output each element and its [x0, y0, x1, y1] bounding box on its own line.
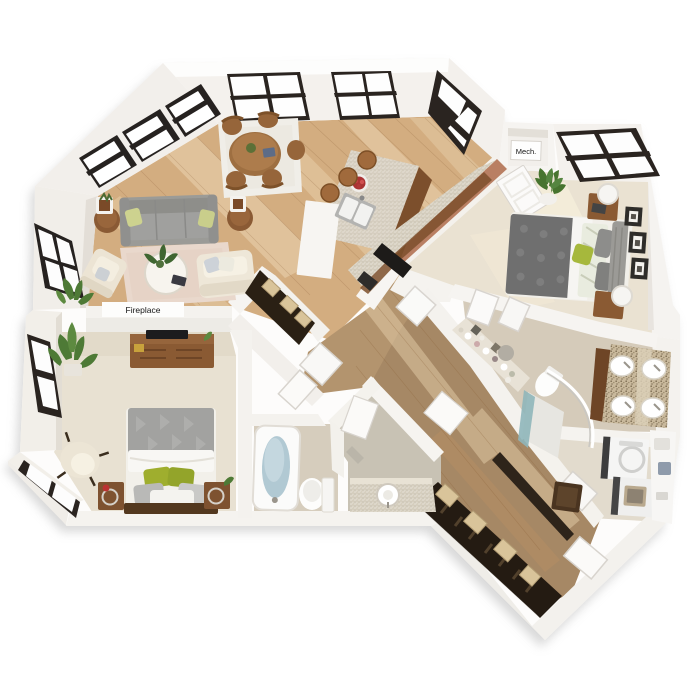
svg-text:Fireplace: Fireplace: [126, 305, 161, 315]
svg-text:Mech.: Mech.: [516, 147, 536, 156]
